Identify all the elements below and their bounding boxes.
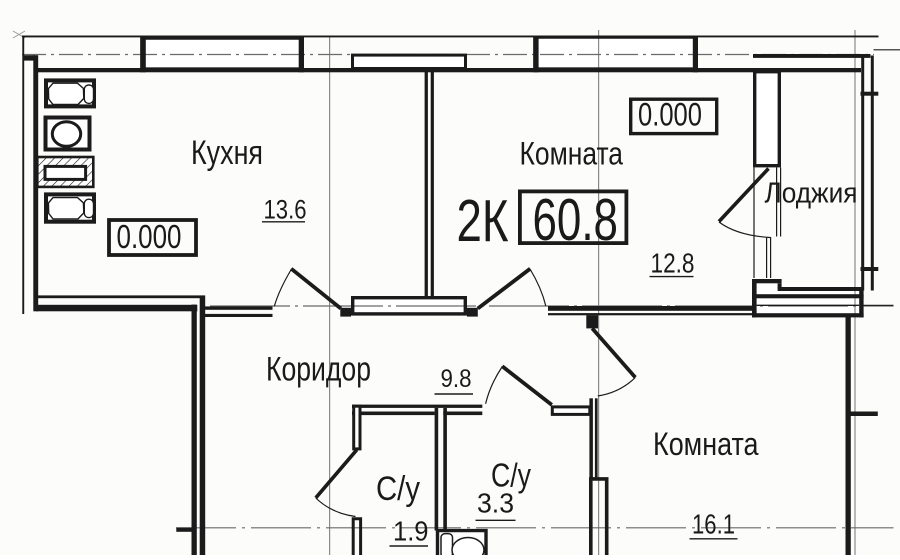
svg-text:С/у: С/у (376, 470, 421, 508)
svg-text:60.8: 60.8 (533, 187, 619, 253)
svg-text:2К: 2К (457, 188, 509, 254)
svg-text:12.8: 12.8 (651, 248, 695, 279)
svg-text:Комната: Комната (653, 426, 759, 462)
svg-text:13.6: 13.6 (264, 195, 307, 225)
svg-text:Лоджия: Лоджия (765, 178, 858, 210)
svg-text:Комната: Комната (520, 136, 624, 172)
svg-text:1.9: 1.9 (393, 516, 429, 547)
svg-text:Кухня: Кухня (191, 134, 263, 172)
svg-text:16.1: 16.1 (692, 509, 735, 540)
svg-text:0.000: 0.000 (638, 97, 702, 133)
svg-text:3.3: 3.3 (477, 488, 514, 519)
svg-text:0.000: 0.000 (117, 218, 182, 255)
svg-text:Коридор: Коридор (266, 351, 371, 389)
svg-text:9.8: 9.8 (441, 365, 472, 393)
